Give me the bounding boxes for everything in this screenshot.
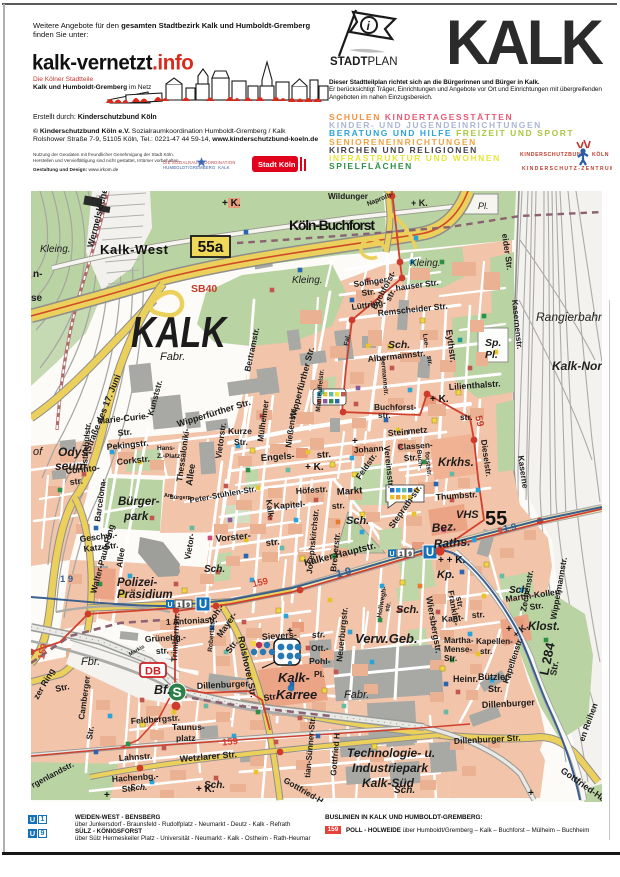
svg-text:U: U — [389, 551, 394, 558]
svg-text:Bürgerp.: Bürgerp. — [170, 495, 193, 501]
svg-text:str.: str. — [460, 412, 473, 422]
svg-text:KALK: KALK — [131, 308, 229, 357]
svg-text:Mense-: Mense- — [444, 645, 472, 654]
svg-text:str.: str. — [69, 476, 83, 487]
svg-text:Kalk-West: Kalk-West — [100, 242, 169, 257]
svg-text:Str.: Str. — [234, 437, 248, 447]
svg-text:Heinr.-: Heinr.- — [453, 674, 481, 684]
svg-text:se: se — [31, 293, 43, 304]
svg-text:+ K.: + K. — [411, 198, 428, 208]
svg-text:Krkhs.: Krkhs. — [438, 457, 474, 469]
svg-text:Markt: Markt — [336, 485, 363, 498]
svg-text:9: 9 — [408, 551, 412, 558]
svg-text:S: S — [172, 684, 181, 700]
svg-text:Klost.: Klost. — [528, 621, 560, 633]
svg-text:platz: platz — [176, 733, 196, 743]
svg-text:KÖLN: KÖLN — [592, 151, 609, 158]
svg-text:VHS: VHS — [456, 509, 479, 521]
svg-text:str.: str. — [331, 500, 345, 511]
svg-text:Fabr.: Fabr. — [160, 351, 185, 363]
svg-text:1 9: 1 9 — [60, 574, 73, 585]
svg-text:Wildunger: Wildunger — [328, 192, 369, 201]
svg-text:Kleing.: Kleing. — [292, 275, 323, 286]
svg-text:Kp.: Kp. — [437, 569, 455, 581]
svg-text:Str.: Str. — [444, 654, 457, 663]
svg-text:Rangierbahn: Rangierbahn — [536, 310, 602, 324]
svg-text:1: 1 — [399, 551, 403, 558]
svg-text:Hans-: Hans- — [157, 445, 175, 452]
svg-text:Str.: Str. — [117, 427, 132, 438]
svg-text:Str.: Str. — [488, 684, 503, 694]
svg-text:+ + K.: + + K. — [438, 555, 465, 566]
svg-text:Martha-: Martha- — [444, 636, 474, 645]
svg-text:of: of — [33, 446, 43, 458]
svg-text:Industriepark: Industriepark — [352, 761, 429, 775]
svg-text:159: 159 — [222, 736, 239, 749]
svg-text:metz: metz — [407, 425, 427, 436]
svg-text:Pl.: Pl. — [314, 669, 325, 679]
svg-text:SB40: SB40 — [191, 283, 217, 295]
svg-text:Sp.: Sp. — [485, 337, 501, 349]
svg-text:Stein: Stein — [387, 427, 409, 438]
svg-text:Pohl-: Pohl- — [309, 656, 331, 666]
svg-text:str.: str. — [265, 536, 280, 548]
svg-text:str.: str. — [480, 647, 492, 656]
svg-text:Präsidium: Präsidium — [117, 589, 173, 601]
svg-text:Bez.: Bez. — [431, 519, 457, 535]
svg-text:Sch.: Sch. — [204, 564, 225, 575]
svg-text:str.: str. — [316, 448, 331, 460]
svg-text:Sch.: Sch. — [388, 339, 410, 351]
svg-text:str.: str. — [425, 355, 433, 366]
svg-text:U: U — [167, 602, 172, 609]
svg-text:U: U — [199, 599, 207, 611]
svg-text:DB: DB — [145, 666, 161, 678]
svg-text:str.: str. — [311, 629, 325, 640]
svg-text:Pl.: Pl. — [485, 349, 498, 361]
svg-text:+: + — [104, 790, 110, 801]
svg-text:9: 9 — [186, 602, 190, 609]
svg-text:+ K.: + K. — [222, 198, 241, 209]
svg-text:KINDERSCHUTZ-ZENTRUM: KINDERSCHUTZ-ZENTRUM — [522, 166, 612, 172]
svg-text:Sch.: Sch. — [130, 783, 147, 792]
svg-text:Bf.: Bf. — [154, 683, 171, 697]
svg-text:Polizei-: Polizei- — [117, 577, 157, 589]
svg-text:+ K.: + K. — [430, 394, 449, 405]
svg-text:Fabr.: Fabr. — [344, 689, 369, 701]
svg-text:+: + — [528, 788, 534, 799]
svg-text:Kapellen-: Kapellen- — [476, 637, 513, 646]
svg-text:Sch.: Sch. — [346, 515, 369, 527]
svg-text:55a: 55a — [198, 239, 224, 256]
svg-text:Verw.Geb.: Verw.Geb. — [355, 631, 418, 646]
svg-text:Sch.: Sch. — [394, 785, 415, 796]
svg-text:1: 1 — [177, 602, 181, 609]
svg-text:n-: n- — [33, 269, 42, 280]
svg-text:Kleing.: Kleing. — [410, 258, 441, 269]
svg-text:Taunus-: Taunus- — [172, 722, 205, 732]
svg-text:Bützler-: Bützler- — [478, 672, 512, 682]
svg-text:Pl.: Pl. — [478, 201, 489, 211]
svg-text:seum: seum — [55, 459, 87, 473]
svg-text:U: U — [426, 547, 434, 559]
svg-text:Fbr.: Fbr. — [81, 656, 100, 668]
svg-text:Bürger-: Bürger- — [118, 496, 160, 508]
svg-text:Kleing.: Kleing. — [40, 244, 71, 255]
svg-text:+ K.: + K. — [305, 462, 324, 473]
svg-text:str.: str. — [471, 609, 485, 620]
svg-text:Sch.: Sch. — [396, 604, 419, 616]
svg-text:Str.: Str. — [529, 600, 544, 612]
svg-text:Kurze: Kurze — [228, 426, 252, 436]
svg-text:Sch.: Sch. — [204, 780, 225, 791]
svg-text:Kant-: Kant- — [441, 612, 464, 624]
svg-text:Karree: Karree — [276, 687, 317, 702]
svg-text:Kalk-: Kalk- — [278, 670, 310, 685]
svg-text:str.: str. — [156, 645, 169, 656]
svg-text:Kalk-Nor: Kalk-Nor — [552, 359, 602, 373]
svg-text:Technologie- u.: Technologie- u. — [347, 746, 435, 760]
svg-text:Ott.-: Ott.- — [311, 643, 329, 653]
svg-text:Köln-Buchforst: Köln-Buchforst — [289, 217, 375, 233]
svg-text:KINDERSCHUTZBUND: KINDERSCHUTZBUND — [520, 152, 586, 158]
svg-text:Raths.: Raths. — [433, 534, 471, 551]
svg-text:park: park — [123, 511, 149, 523]
svg-text:str.: str. — [378, 410, 391, 420]
svg-text:Str.: Str. — [84, 726, 96, 741]
